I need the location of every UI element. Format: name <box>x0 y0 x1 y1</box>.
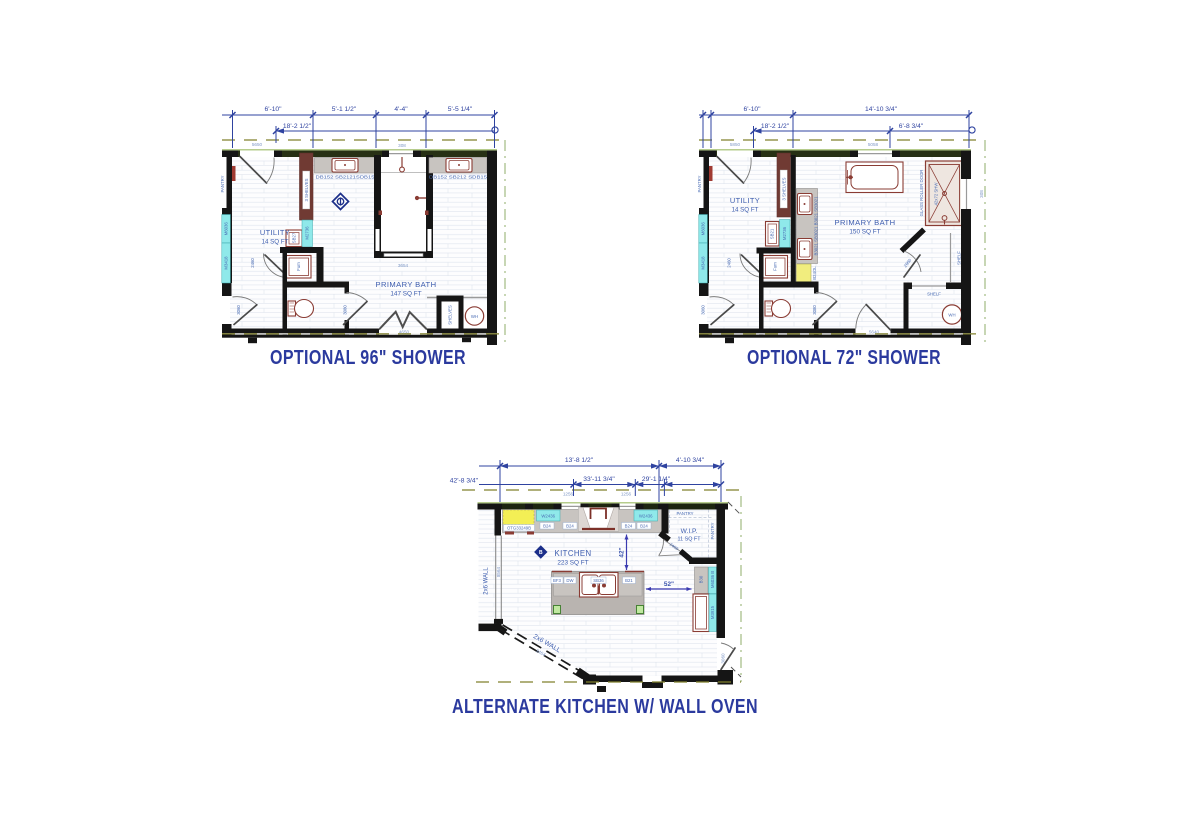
svg-text:B21: B21 <box>625 578 633 583</box>
svg-text:42x72 SHW: 42x72 SHW <box>934 182 939 206</box>
svg-text:6'-10": 6'-10" <box>743 106 761 113</box>
svg-text:M2736: M2736 <box>305 226 310 240</box>
svg-text:3 SHELVES: 3 SHELVES <box>304 178 309 201</box>
svg-text:B24: B24 <box>543 524 551 529</box>
svg-text:SHELVES: SHELVES <box>447 305 452 325</box>
svg-text:18'-2 1/2": 18'-2 1/2" <box>761 123 790 130</box>
svg-text:PANTRY: PANTRY <box>697 175 702 192</box>
svg-text:UTILITY: UTILITY <box>260 228 290 237</box>
svg-text:M6036 B: M6036 B <box>710 571 715 588</box>
svg-text:PANTRY: PANTRY <box>676 511 693 516</box>
svg-text:1256: 1256 <box>563 492 574 497</box>
svg-text:2x6 WALL: 2x6 WALL <box>484 567 490 595</box>
svg-text:WH: WH <box>948 312 955 317</box>
svg-text:1256: 1256 <box>621 492 632 497</box>
svg-text:5058: 5058 <box>868 142 879 147</box>
svg-text:5'-1 1/2": 5'-1 1/2" <box>332 106 357 113</box>
svg-text:SB27: SB27 <box>292 232 297 243</box>
svg-text:6'-8 3/4": 6'-8 3/4" <box>899 123 924 130</box>
svg-text:14'-10 3/4": 14'-10 3/4" <box>865 106 898 113</box>
svg-text:150 SQ FT: 150 SQ FT <box>849 229 880 236</box>
svg-text:PRIMARY BATH: PRIMARY BATH <box>376 280 437 289</box>
svg-text:SHELF: SHELF <box>927 292 941 297</box>
svg-text:14 SQ FT: 14 SQ FT <box>262 239 289 246</box>
svg-text:2460: 2460 <box>727 258 732 268</box>
svg-text:5850: 5850 <box>730 142 741 147</box>
svg-text:M3418: M3418 <box>224 256 229 270</box>
svg-text:6'-10": 6'-10" <box>264 106 282 113</box>
svg-text:M6036: M6036 <box>701 222 706 236</box>
svg-text:3060: 3060 <box>236 305 241 315</box>
svg-text:13'-8 1/2": 13'-8 1/2" <box>565 457 594 464</box>
svg-text:4'-4": 4'-4" <box>394 106 408 113</box>
svg-text:DW: DW <box>566 578 574 583</box>
svg-text:8564: 8564 <box>496 566 501 577</box>
svg-text:OPTIONAL 96" SHOWER: OPTIONAL 96" SHOWER <box>270 346 466 369</box>
svg-text:223 SQ FT: 223 SQ FT <box>557 560 588 567</box>
svg-text:B24: B24 <box>566 524 574 529</box>
svg-text:M3915: M3915 <box>710 605 715 619</box>
svg-text:WH: WH <box>471 314 478 319</box>
svg-text:B24: B24 <box>625 524 633 529</box>
svg-text:5'-5 1/4": 5'-5 1/4" <box>448 106 473 113</box>
svg-text:DB152 SB2121SDB15: DB152 SB2121SDB15 <box>316 175 376 180</box>
svg-text:4'-10 3/4": 4'-10 3/4" <box>676 457 705 464</box>
svg-text:SHELF: SHELF <box>957 251 962 265</box>
svg-text:W2436: W2436 <box>639 514 653 519</box>
svg-text:B30: B30 <box>699 575 704 583</box>
svg-text:W.I.P.: W.I.P. <box>681 528 698 535</box>
svg-text:5650: 5650 <box>252 142 263 147</box>
svg-text:29'-1 1/4": 29'-1 1/4" <box>642 476 671 483</box>
svg-text:3060: 3060 <box>701 305 706 315</box>
svg-text:11 SQ FT: 11 SQ FT <box>678 537 702 543</box>
svg-text:PANTRY: PANTRY <box>220 175 225 192</box>
svg-text:OPTIONAL 72" SHOWER: OPTIONAL 72" SHOWER <box>747 346 941 369</box>
svg-text:B: B <box>539 550 543 556</box>
svg-text:SB36: SB36 <box>593 578 604 583</box>
svg-text:3080: 3080 <box>812 305 817 315</box>
svg-text:3 SHELVES: 3 SHELVES <box>781 177 786 200</box>
svg-text:OTG33249B: OTG33249B <box>507 526 531 531</box>
svg-text:SB21: SB21 <box>770 228 775 239</box>
svg-text:UTILITY: UTILITY <box>730 196 760 205</box>
svg-text:PANTRY: PANTRY <box>710 522 715 539</box>
svg-text:Furn: Furn <box>773 261 778 270</box>
svg-text:42'-8 3/4": 42'-8 3/4" <box>450 478 479 485</box>
svg-text:3080: 3080 <box>343 305 348 315</box>
svg-text:18'-2 1/2": 18'-2 1/2" <box>283 123 312 130</box>
svg-text:KITCHEN: KITCHEN <box>554 549 591 558</box>
svg-text:2460: 2460 <box>250 258 255 268</box>
svg-text:147 SQ FT: 147 SQ FT <box>390 291 421 298</box>
svg-text:ALTERNATE KITCHEN W/ WALL OVEN: ALTERNATE KITCHEN W/ WALL OVEN <box>452 695 758 718</box>
svg-text:14 SQ FT: 14 SQ FT <box>732 207 759 214</box>
svg-text:33'-11 3/4": 33'-11 3/4" <box>583 476 615 483</box>
svg-text:BF3: BF3 <box>553 578 561 583</box>
svg-text:42": 42" <box>619 547 626 557</box>
svg-text:308: 308 <box>398 143 406 148</box>
svg-text:DB152 SB212 SDB15: DB152 SB212 SDB15 <box>429 175 488 180</box>
svg-text:M3418: M3418 <box>701 256 706 270</box>
svg-text:Furn: Furn <box>296 261 301 270</box>
svg-text:52": 52" <box>664 581 674 588</box>
svg-text:308: 308 <box>979 190 984 198</box>
svg-text:PRIMARY BATH: PRIMARY BATH <box>835 218 896 227</box>
svg-text:W2436: W2436 <box>541 514 555 519</box>
svg-text:B24: B24 <box>640 524 648 529</box>
svg-text:3060: 3060 <box>721 653 726 664</box>
svg-text:GLASS ROLLER DOOR: GLASS ROLLER DOOR <box>919 170 924 217</box>
svg-text:M6036: M6036 <box>224 222 229 236</box>
svg-text:B24OL: B24OL <box>812 266 817 280</box>
svg-text:B3021 SB3021 B3021 SB3021: B3021 SB3021 B3021 SB3021 <box>813 196 818 256</box>
svg-text:M2736: M2736 <box>782 226 787 240</box>
svg-text:3654: 3654 <box>398 263 409 268</box>
